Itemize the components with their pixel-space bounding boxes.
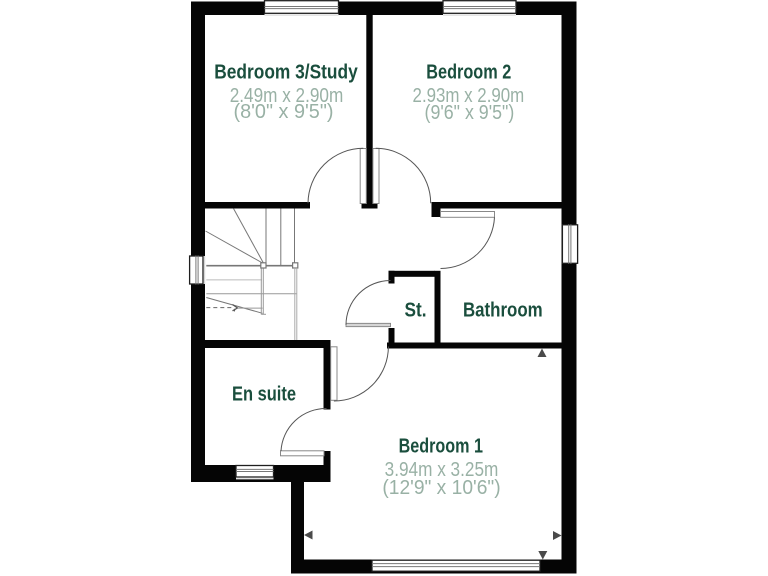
svg-text:Bedroom 1: Bedroom 1 xyxy=(399,435,483,457)
svg-text:(12'9" x 10'6"): (12'9" x 10'6") xyxy=(382,477,500,499)
svg-text:Bedroom 3/Study: Bedroom 3/Study xyxy=(214,62,358,84)
svg-text:(8'0" x 9'5"): (8'0" x 9'5") xyxy=(234,101,334,123)
svg-text:St.: St. xyxy=(405,300,427,322)
svg-text:Bathroom: Bathroom xyxy=(463,300,543,322)
svg-text:(9'6" x 9'5"): (9'6" x 9'5") xyxy=(425,102,515,124)
svg-text:En suite: En suite xyxy=(232,383,296,405)
svg-text:Bedroom 2: Bedroom 2 xyxy=(426,62,511,84)
